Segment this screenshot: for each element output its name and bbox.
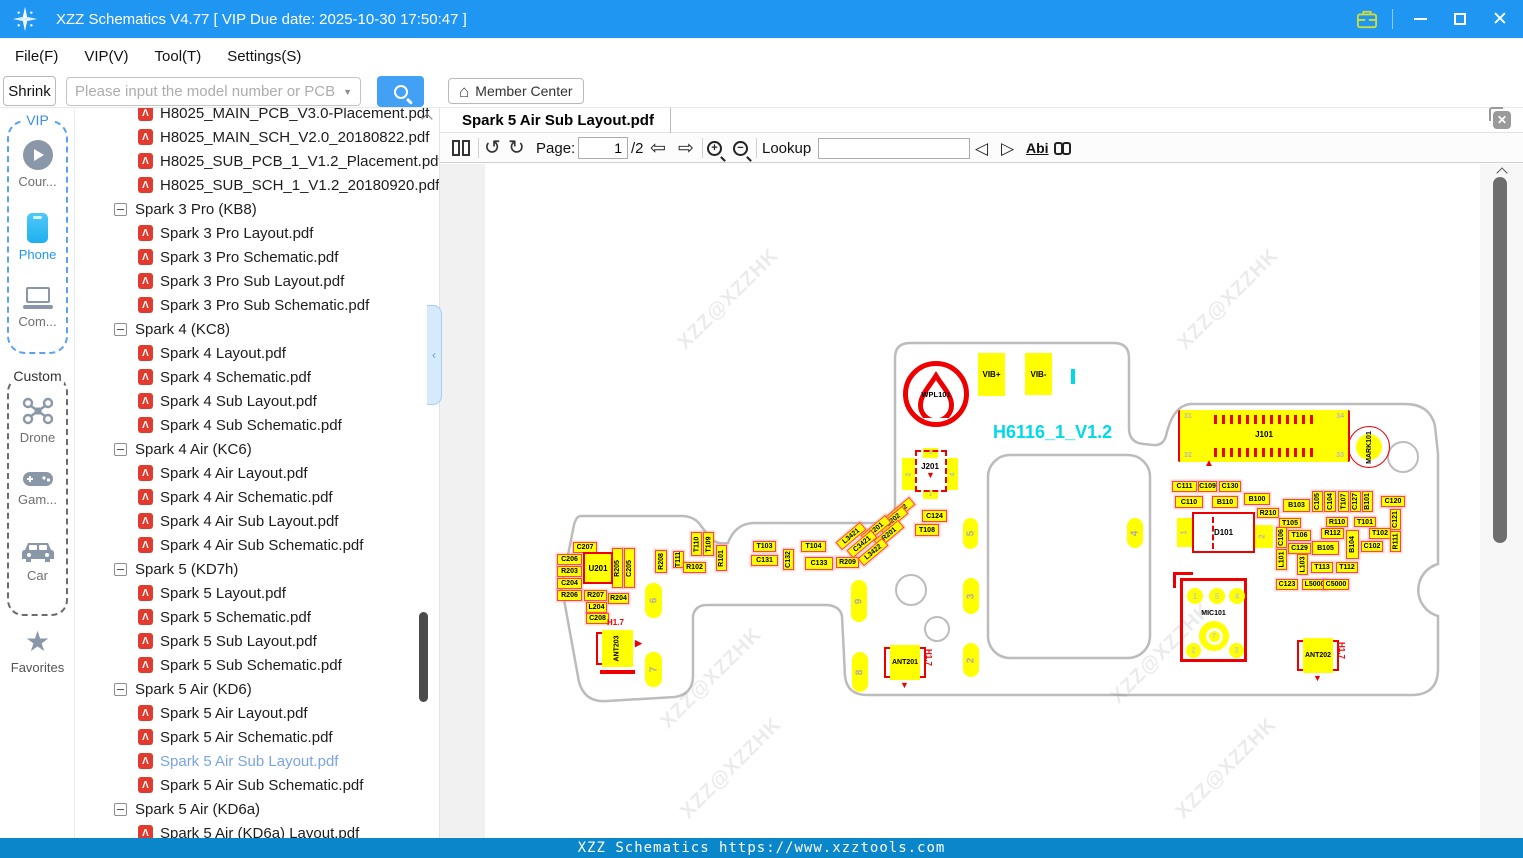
component-label: R207 <box>584 590 607 601</box>
tree-item[interactable]: ΛSpark 4 Air Sub Layout.pdf <box>75 509 439 533</box>
component-label: C104 <box>1324 491 1336 512</box>
tree-item[interactable]: ΛSpark 5 Sub Layout.pdf <box>75 629 439 653</box>
pdf-page[interactable]: XZZ@XZZHKXZZ@XZZHKXZZ@XZZHKXZZ@XZZHKXZZ@… <box>485 164 1480 838</box>
phone-icon <box>27 213 48 243</box>
edge-pad: 4 <box>1127 518 1143 548</box>
component-label: T112 <box>1336 562 1358 573</box>
app-logo-icon <box>12 6 38 32</box>
pdf-canvas-area[interactable]: XZZ@XZZHKXZZ@XZZHKXZZ@XZZHKXZZ@XZZHKXZZ@… <box>440 164 1523 838</box>
status-bar: XZZ Schematics https://www.xzztools.com <box>0 838 1523 858</box>
collapse-toggle-icon[interactable] <box>114 203 127 216</box>
minimize-button[interactable] <box>1407 6 1433 32</box>
component-label: T101 <box>1354 517 1376 527</box>
component-u201: U201 <box>583 552 613 584</box>
window-title: XZZ Schematics V4.77 [ VIP Due date: 202… <box>56 11 467 28</box>
rotate-right-button[interactable]: ↻ <box>508 133 525 163</box>
tree-group[interactable]: Spark 5 (KD7h) <box>75 557 439 581</box>
collapse-toggle-icon[interactable] <box>114 563 127 576</box>
arrow-right-icon: ⇨ <box>678 139 694 158</box>
file-tree-panel: ΛH8025_MAIN_PCB_V3.0-Placement.pdfΛH8025… <box>75 108 440 838</box>
component-label: B100 <box>1244 493 1270 505</box>
component-label: L204 <box>586 602 607 613</box>
component-label: C5000 <box>1323 579 1349 590</box>
sidebar-item-course[interactable]: Cour... <box>0 140 75 189</box>
component-label: C123 <box>1276 579 1298 590</box>
component-label: T102 <box>1369 528 1391 539</box>
lookup-label: Lookup <box>762 140 811 157</box>
component-ant203: ANT203▶ <box>602 630 633 667</box>
pdf-file-icon: Λ <box>138 657 153 673</box>
board-hole <box>895 574 927 606</box>
collapse-toggle-icon[interactable] <box>114 443 127 456</box>
tree-item[interactable]: ΛH8025_MAIN_SCH_V2.0_20180822.pdf <box>75 125 439 149</box>
height-marking: H1.7 <box>607 619 624 627</box>
component-label: R110 <box>1326 517 1348 527</box>
file-tree: ΛH8025_MAIN_PCB_V3.0-Placement.pdfΛH8025… <box>75 108 439 838</box>
tree-item[interactable]: ΛSpark 5 Air (KD6a) Layout.pdf <box>75 821 439 838</box>
tree-item[interactable]: ΛSpark 4 Air Schematic.pdf <box>75 485 439 509</box>
component-label: R204 <box>608 593 629 604</box>
component-label: C127 <box>1350 491 1361 512</box>
model-search-input[interactable]: Please input the model number or PCB ▼ <box>66 77 361 106</box>
panel-collapse-handle[interactable]: ‹ <box>427 305 442 405</box>
component-ant201: ANT201▼ <box>890 645 920 680</box>
category-rail: VIP Custom Cour... Phone Com... <box>0 108 75 838</box>
pdf-file-icon: Λ <box>138 417 153 433</box>
tree-item[interactable]: ΛH8025_SUB_PCB_1_V1.2_Placement.pdf <box>75 149 439 173</box>
home-icon: ⌂ <box>459 83 469 100</box>
tree-item[interactable]: ΛSpark 3 Pro Layout.pdf <box>75 221 439 245</box>
edge-pad: 6 <box>645 583 662 618</box>
component-label: T104 <box>801 541 826 552</box>
member-center-button[interactable]: ⌂ Member Center <box>448 78 584 104</box>
tree-item[interactable]: ΛSpark 4 Air Sub Schematic.pdf <box>75 533 439 557</box>
menu-bar: File(F) VIP(V) Tool(T) Settings(S) <box>0 38 1523 74</box>
tree-item[interactable]: ΛSpark 4 Layout.pdf <box>75 341 439 365</box>
component-label: T103 <box>753 541 776 552</box>
two-page-view-button[interactable] <box>452 133 470 163</box>
chevron-down-icon[interactable]: ▼ <box>343 87 352 97</box>
sidebar-item-drone[interactable]: Drone <box>0 396 75 445</box>
page-total: /2 <box>631 140 644 157</box>
tree-group[interactable]: Spark 3 Pro (KB8) <box>75 197 439 221</box>
two-page-icon <box>452 140 470 156</box>
rotate-right-icon: ↻ <box>508 138 525 158</box>
component-label: R206 <box>557 590 582 601</box>
arrow-left-icon: ⇦ <box>650 139 666 158</box>
component-label: C102 <box>1361 541 1383 552</box>
sidebar-item-computer[interactable]: Com... <box>0 286 75 329</box>
component-label: C130 <box>1219 481 1241 492</box>
tab-bar: Spark 5 Air Sub Layout.pdf ✕ <box>440 108 1523 133</box>
component-label: R205 <box>612 548 623 588</box>
tree-item[interactable]: ΛH8025_SUB_SCH_1_V1.2_20180920.pdf <box>75 173 439 197</box>
pdf-file-icon: Λ <box>138 249 153 265</box>
collapse-toggle-icon[interactable] <box>114 803 127 816</box>
custom-group-label: Custom <box>11 368 63 384</box>
text-select-button[interactable]: Abi <box>1026 133 1049 163</box>
component-label: C129 <box>1288 543 1311 554</box>
component-d101: 12D101 <box>1176 511 1273 556</box>
pdf-file-icon: Λ <box>138 273 153 289</box>
vib-pad: VIB- <box>1025 353 1052 395</box>
page-label: Page: <box>536 140 575 157</box>
component-label: C124 <box>922 510 947 522</box>
component-label: L101 <box>1276 549 1287 570</box>
pdf-file-icon: Λ <box>138 489 153 505</box>
edge-pad: 2 <box>963 643 979 677</box>
pdf-file-icon: Λ <box>138 345 153 361</box>
tree-scrollbar-thumb[interactable] <box>419 612 428 702</box>
maximize-button[interactable] <box>1447 6 1473 32</box>
menu-tool[interactable]: Tool(T) <box>155 48 202 65</box>
tree-item[interactable]: ΛSpark 4 Schematic.pdf <box>75 365 439 389</box>
rotate-left-button[interactable]: ↺ <box>484 133 501 163</box>
pdf-file-icon: Λ <box>138 225 153 241</box>
pdf-file-icon: Λ <box>138 108 153 121</box>
title-bar: XZZ Schematics V4.77 [ VIP Due date: 202… <box>0 0 1523 38</box>
edge-pad: 8 <box>852 652 868 692</box>
component-label: R101 <box>716 545 727 571</box>
sidebar-item-phone[interactable]: Phone <box>0 213 75 262</box>
pdf-file-icon: Λ <box>138 633 153 649</box>
component-label: T109 <box>703 532 714 556</box>
pdf-viewer: Spark 5 Air Sub Layout.pdf ✕ ↺ ↻ Page: /… <box>440 108 1523 838</box>
zoom-in-icon: + <box>707 141 722 156</box>
pdf-file-icon: Λ <box>138 729 153 745</box>
tree-item[interactable]: ΛSpark 5 Layout.pdf <box>75 581 439 605</box>
component-label: R112 <box>1321 528 1344 539</box>
component-label: T106 <box>1288 530 1311 541</box>
component-mark101: MARK101 <box>1348 426 1390 468</box>
component-label: C109 <box>1198 481 1217 492</box>
pdf-file-icon: Λ <box>138 129 153 145</box>
tree-scroll-up-icon[interactable] <box>422 112 432 122</box>
abi-label: Abi <box>1026 140 1049 156</box>
page-number-input[interactable] <box>578 137 628 159</box>
component-label: B103 <box>1283 499 1310 512</box>
triangle-right-icon: ▷ <box>1001 140 1014 157</box>
pdf-file-icon: Λ <box>138 825 153 838</box>
component-label: C132 <box>783 549 794 570</box>
tree-group[interactable]: Spark 4 (KC8) <box>75 317 439 341</box>
pdf-file-icon: Λ <box>138 153 153 169</box>
pdf-file-icon: Λ <box>138 369 153 385</box>
component-label: B110 <box>1212 496 1238 508</box>
tree-item[interactable]: ΛSpark 5 Air Schematic.pdf <box>75 725 439 749</box>
pdf-file-icon: Λ <box>138 609 153 625</box>
board-hole <box>1387 441 1419 473</box>
play-circle-icon <box>23 140 53 170</box>
tree-group[interactable]: Spark 5 Air (KD6a) <box>75 797 439 821</box>
tree-group[interactable]: Spark 5 Air (KD6) <box>75 677 439 701</box>
vip-group-label: VIP <box>23 112 52 128</box>
tree-item[interactable]: ΛSpark 5 Air Sub Schematic.pdf <box>75 773 439 797</box>
component-label: T113 <box>1311 562 1333 573</box>
component-label: R209 <box>836 557 859 568</box>
tree-item[interactable]: ΛSpark 4 Sub Schematic.pdf <box>75 413 439 437</box>
triangle-left-icon: ◁ <box>975 140 988 157</box>
search-button[interactable] <box>377 76 424 107</box>
height-marking: H1.7 <box>924 649 932 666</box>
component-label: R208 <box>655 550 667 573</box>
component-label: C206 <box>557 554 582 565</box>
rotate-left-icon: ↺ <box>484 138 501 158</box>
component-label: C131 <box>751 555 778 566</box>
search-placeholder: Please input the model number or PCB <box>75 83 343 100</box>
component-label: B105 <box>1312 541 1339 555</box>
menu-vip[interactable]: VIP(V) <box>84 48 128 65</box>
drone-icon <box>22 396 54 426</box>
tree-item[interactable]: ΛSpark 5 Air Sub Layout.pdf <box>75 749 439 773</box>
sidebar-item-game[interactable]: Gam... <box>0 470 75 507</box>
viewer-scrollbar <box>1480 164 1523 838</box>
pdf-file-icon: Λ <box>138 297 153 313</box>
find-next-button[interactable]: ▷ <box>1001 133 1014 163</box>
member-center-label: Member Center <box>475 83 572 99</box>
component-label: R102 <box>683 562 706 573</box>
component-label: T108 <box>915 524 939 536</box>
zoom-out-button[interactable]: − <box>733 133 748 163</box>
search-row: Shrink Please input the model number or … <box>0 74 1523 108</box>
pdf-file-icon: Λ <box>138 513 153 529</box>
close-tab-icon[interactable]: ✕ <box>1493 111 1511 129</box>
component-label: T107 <box>1338 491 1349 512</box>
laptop-icon <box>23 286 53 310</box>
pdf-file-icon: Λ <box>138 705 153 721</box>
pdf-file-icon: Λ <box>138 537 153 553</box>
component-label: C208 <box>586 613 609 624</box>
marker-arrow: ▲ <box>1204 459 1214 469</box>
component-wpl101: WPL101 <box>903 361 969 427</box>
pdf-file-icon: Λ <box>138 393 153 409</box>
edge-pad: 9 <box>851 580 867 622</box>
menu-file[interactable]: File(F) <box>15 48 58 65</box>
component-label: T110 <box>691 532 702 556</box>
component-label: B104 <box>1346 530 1359 559</box>
pdf-file-icon: Λ <box>138 753 153 769</box>
tree-item[interactable]: ΛH8025_MAIN_PCB_V3.0-Placement.pdf <box>75 108 439 125</box>
menu-settings[interactable]: Settings(S) <box>227 48 301 65</box>
pdf-file-icon: Λ <box>138 465 153 481</box>
component-mic101: 15423MIC1017 <box>1180 578 1247 662</box>
component-label: C204 <box>557 578 582 589</box>
component-label: C106 <box>1276 527 1287 548</box>
zoom-out-icon: − <box>733 141 748 156</box>
dual-view-button[interactable] <box>1054 133 1071 163</box>
component-label: L103 <box>1297 554 1308 575</box>
component-label: B101 <box>1362 491 1373 512</box>
status-text: XZZ Schematics https://www.xzztools.com <box>578 840 946 856</box>
tree-item[interactable]: ΛSpark 4 Air Layout.pdf <box>75 461 439 485</box>
component-label: C133 <box>805 557 833 570</box>
component-j101: 31323334J101 <box>1178 410 1350 462</box>
edge-pad: 3 <box>963 578 979 614</box>
prev-page-button[interactable]: ⇦ <box>650 133 666 163</box>
next-page-button[interactable]: ⇨ <box>678 133 694 163</box>
viewer-toolbar: ↺ ↻ Page: /2 ⇦ ⇨ + − Lookup ◁ ▷ Abi <box>440 133 1523 163</box>
find-prev-button[interactable]: ◁ <box>975 133 988 163</box>
tree-item[interactable]: ΛSpark 5 Air Layout.pdf <box>75 701 439 725</box>
tree-item[interactable]: ΛSpark 3 Pro Schematic.pdf <box>75 245 439 269</box>
component-label: C105 <box>1312 491 1323 512</box>
titlebar-divider <box>1392 9 1393 29</box>
tree-item[interactable]: ΛSpark 5 Schematic.pdf <box>75 605 439 629</box>
tab-active[interactable]: Spark 5 Air Sub Layout.pdf <box>440 108 671 133</box>
pdf-file-icon: Λ <box>138 777 153 793</box>
collapse-toggle-icon[interactable] <box>114 683 127 696</box>
component-label: C120 <box>1381 496 1405 507</box>
pdf-file-icon: Λ <box>138 177 153 193</box>
board-title: H6116_1_V1.2 <box>993 422 1112 443</box>
collapse-toggle-icon[interactable] <box>114 323 127 336</box>
star-icon: ★ <box>25 628 50 656</box>
height-marking: H1.7 <box>1337 642 1345 659</box>
component-label: C205 <box>624 548 635 588</box>
component-label: C110 <box>1175 496 1203 508</box>
edge-pad: 5 <box>963 518 978 549</box>
component-label: C111 <box>1172 481 1197 492</box>
lookup-input[interactable] <box>818 138 970 159</box>
component-label: R203 <box>557 566 582 577</box>
component-ant202: ANT202▼ <box>1303 638 1333 673</box>
board-hole <box>924 616 950 642</box>
scroll-up-icon[interactable] <box>1497 166 1507 176</box>
tree-group[interactable]: Spark 4 Air (KC6) <box>75 437 439 461</box>
search-icon <box>394 85 408 99</box>
pdf-file-icon: Λ <box>138 585 153 601</box>
binoculars-icon <box>1054 142 1071 155</box>
edge-pad: 7 <box>645 652 662 687</box>
shrink-button[interactable]: Shrink <box>3 76 56 106</box>
cyan-mark <box>1071 369 1075 384</box>
tree-item[interactable]: ΛSpark 3 Pro Sub Layout.pdf <box>75 269 439 293</box>
component-label: R111 <box>1390 531 1401 552</box>
viewer-scrollbar-thumb[interactable] <box>1493 177 1507 543</box>
tree-item[interactable]: ΛSpark 3 Pro Sub Schematic.pdf <box>75 293 439 317</box>
app-window: XZZ Schematics V4.77 [ VIP Due date: 202… <box>0 0 1523 858</box>
component-j201: 3241J201▼ <box>900 446 960 508</box>
sidebar-item-favorites[interactable]: ★ Favorites <box>0 628 75 675</box>
vib-pad: VIB+ <box>978 353 1005 396</box>
tree-item[interactable]: ΛSpark 4 Sub Layout.pdf <box>75 389 439 413</box>
pcb-layout: XZZ@XZZHKXZZ@XZZHKXZZ@XZZHKXZZ@XZZHKXZZ@… <box>485 164 1480 838</box>
sidebar-item-car[interactable]: Car <box>0 540 75 583</box>
component-label: C121 <box>1390 509 1401 530</box>
close-button[interactable]: ✕ <box>1487 6 1513 32</box>
gamepad-icon <box>22 470 54 488</box>
car-icon <box>21 540 55 564</box>
tree-item[interactable]: ΛSpark 5 Sub Schematic.pdf <box>75 653 439 677</box>
zoom-in-button[interactable]: + <box>707 133 722 163</box>
license-briefcase-icon[interactable] <box>1356 9 1378 29</box>
